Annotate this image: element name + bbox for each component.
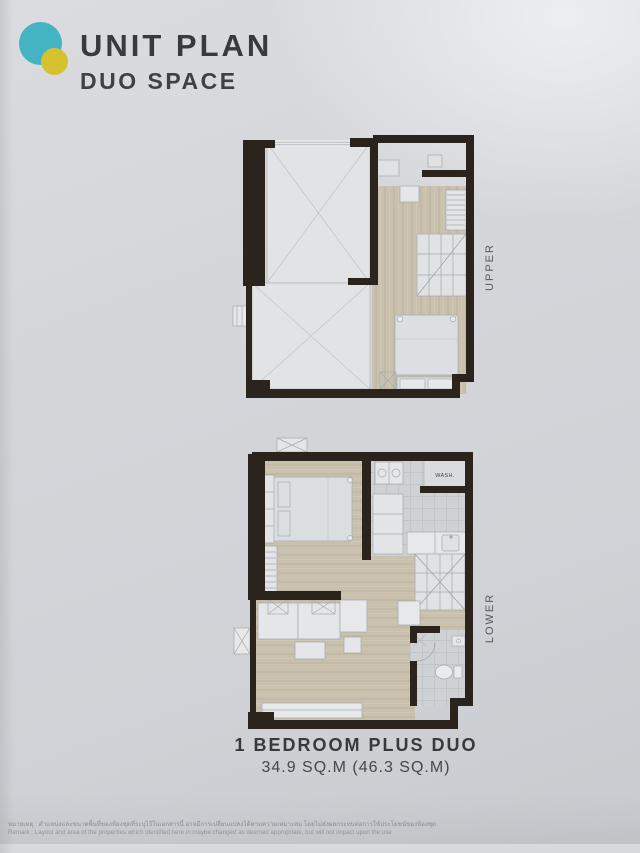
bath-sink [452,636,465,646]
washing-machine [375,462,403,484]
stool [344,637,361,653]
fridge-counter [373,494,403,554]
staircase [417,234,466,296]
page-title: UNIT PLAN [80,28,272,64]
upper-void-areas [252,143,370,389]
remark-english: Remark : Layout and area of the properti… [8,829,568,837]
wardrobe-shelves [446,190,466,230]
upper-floor-label: UPPER [484,243,496,291]
side-table [340,600,367,632]
staircase [415,554,465,610]
bed [264,475,353,543]
kitchen-counter [407,532,466,554]
logo-yellow-circle-icon [41,48,68,75]
ac-unit [428,155,442,167]
desk [258,603,340,639]
remark-thai: หมายเหตุ : ตำแหน่งและขนาดพื้นที่ของห้องช… [8,821,568,829]
duct-column [400,186,419,202]
lower-floor-plan: WASH. [230,436,480,740]
ac-unit [277,438,307,452]
wash-label: WASH. [435,473,454,479]
page-bottom-edge [0,844,640,853]
tv-console [262,703,362,718]
condenser-ledge [234,628,250,654]
lower-floor-label: LOWER [484,593,496,643]
cabinet [398,601,420,625]
upper-floor-plan [230,134,480,404]
unit-area: 34.9 SQ.M (46.3 SQ.M) [180,759,532,777]
wash-room: WASH. [424,460,466,487]
coffee-table [295,642,325,659]
page-subtitle: DUO SPACE [80,68,238,95]
remark-block: หมายเหตุ : ตำแหน่งและขนาดพื้นที่ของห้องช… [8,821,568,837]
window [275,140,350,147]
unit-name: 1 BEDROOM PLUS DUO [180,735,532,756]
toilet [436,665,463,679]
bed [395,315,458,391]
brochure-page: { "header": { "title": "UNIT PLAN", "sub… [0,0,640,853]
unit-info: 1 BEDROOM PLUS DUO 34.9 SQ.M (46.3 SQ.M) [180,735,532,777]
